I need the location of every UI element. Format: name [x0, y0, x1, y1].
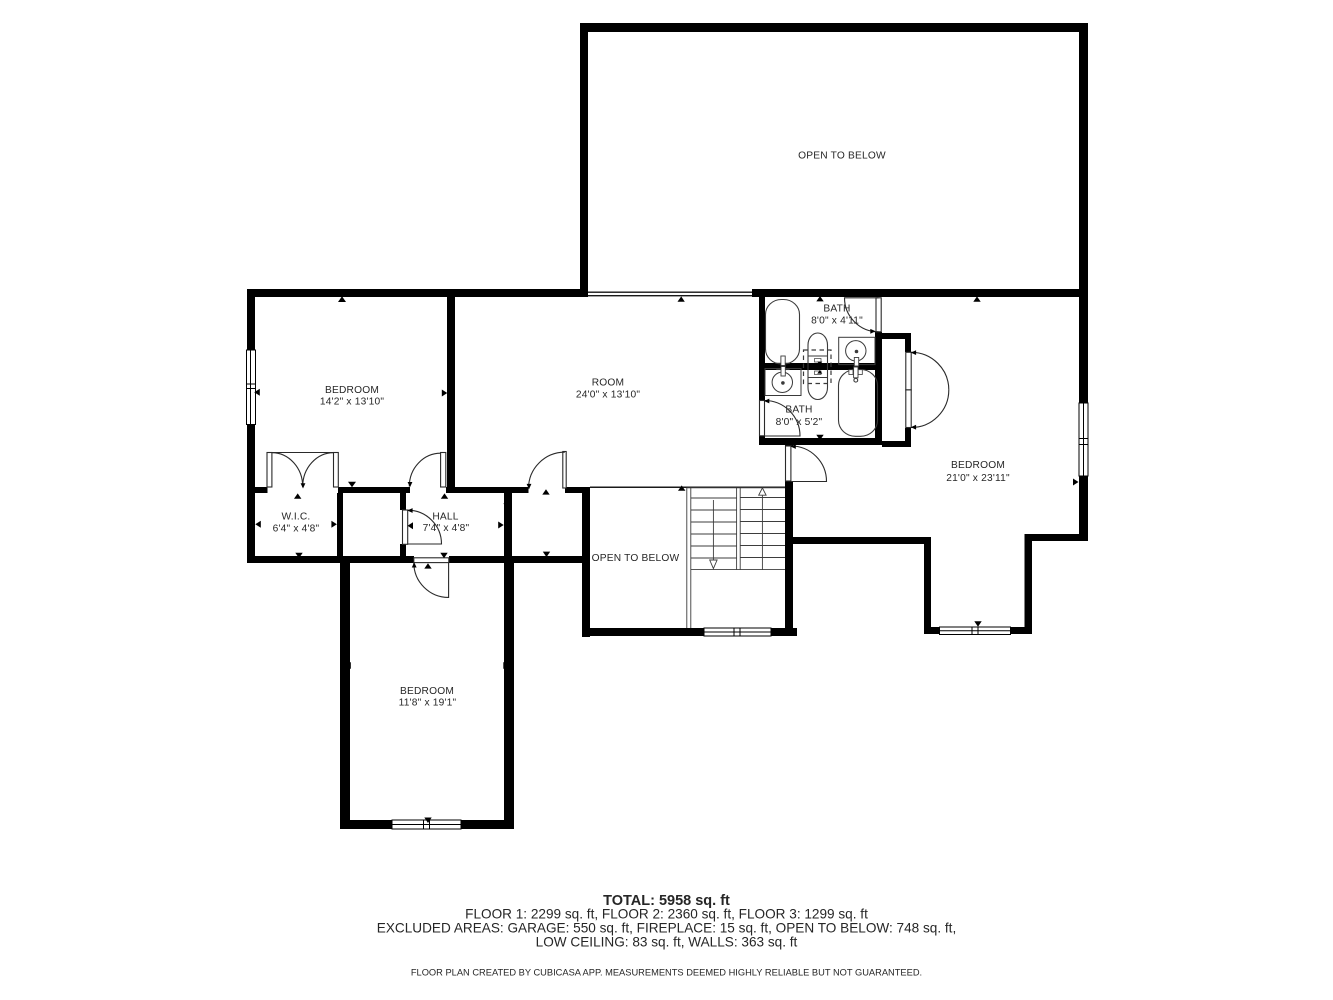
svg-text:BEDROOM: BEDROOM	[400, 686, 454, 697]
svg-text:14'2" x 13'10": 14'2" x 13'10"	[320, 397, 385, 408]
svg-text:21'0" x 23'11": 21'0" x 23'11"	[946, 473, 1010, 484]
svg-text:FLOOR PLAN CREATED BY CUBICASA: FLOOR PLAN CREATED BY CUBICASA APP. MEAS…	[411, 968, 922, 978]
svg-text:W.I.C.: W.I.C.	[282, 512, 311, 523]
svg-text:OPEN TO BELOW: OPEN TO BELOW	[798, 151, 886, 162]
svg-text:LOW CEILING: 83 sq. ft, WALLS:: LOW CEILING: 83 sq. ft, WALLS: 363 sq. f…	[536, 935, 798, 950]
svg-text:BEDROOM: BEDROOM	[951, 460, 1005, 471]
svg-text:FLOOR 1: 2299 sq. ft, FLOOR 2:: FLOOR 1: 2299 sq. ft, FLOOR 2: 2360 sq. …	[465, 907, 868, 922]
svg-text:8'0" x 4'11": 8'0" x 4'11"	[811, 316, 863, 327]
svg-text:BEDROOM: BEDROOM	[325, 385, 379, 396]
svg-text:24'0" x 13'10": 24'0" x 13'10"	[576, 390, 641, 401]
svg-text:HALL: HALL	[432, 512, 458, 523]
svg-text:ROOM: ROOM	[592, 378, 625, 389]
svg-text:7'4" x 4'8": 7'4" x 4'8"	[423, 523, 470, 534]
svg-text:11'8" x 19'1": 11'8" x 19'1"	[399, 698, 457, 709]
svg-text:OPEN TO BELOW: OPEN TO BELOW	[592, 553, 680, 564]
svg-text:6'4" x 4'8": 6'4" x 4'8"	[273, 524, 320, 535]
svg-text:EXCLUDED AREAS: GARAGE: 550 sq: EXCLUDED AREAS: GARAGE: 550 sq. ft, FIRE…	[377, 921, 956, 936]
